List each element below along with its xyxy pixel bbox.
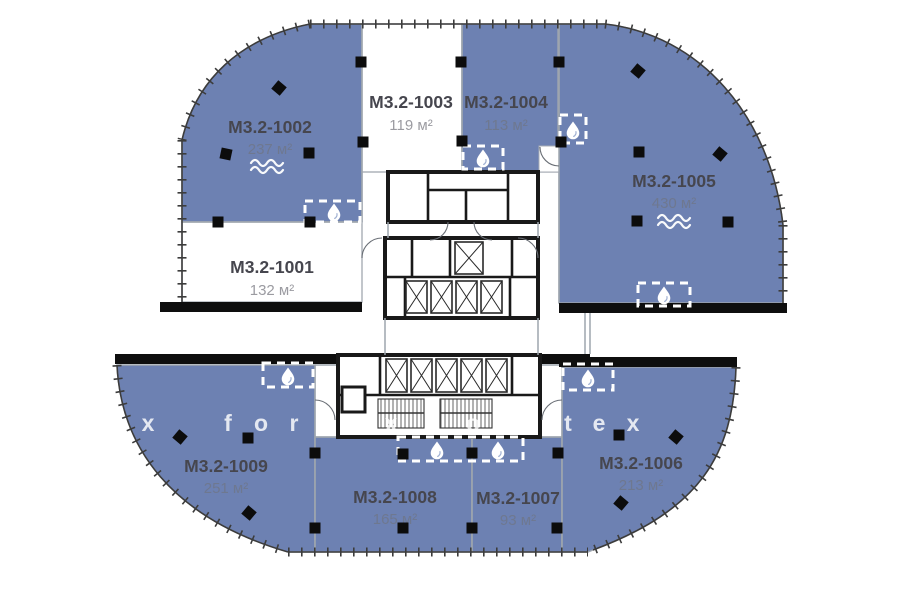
watermark-letter: x xyxy=(142,410,155,436)
watermark-letter: o xyxy=(466,410,480,436)
column-marker xyxy=(219,147,232,160)
unit-label: M3.2-1001 xyxy=(230,257,314,277)
door-notch-1004 xyxy=(539,146,559,172)
column-marker xyxy=(634,147,645,158)
elevator-shaft xyxy=(486,359,507,392)
elevator-shaft xyxy=(436,359,457,392)
watermark-letter: e xyxy=(351,410,364,436)
elevator-shaft xyxy=(455,242,483,274)
column-marker xyxy=(556,137,567,148)
column-marker xyxy=(457,136,468,147)
column-marker xyxy=(467,523,478,534)
watermark-letter: r xyxy=(290,410,299,436)
unit-area-label: 430 м² xyxy=(652,195,697,212)
unit-area-label: 213 м² xyxy=(619,477,664,494)
watermark-letter: r xyxy=(501,410,510,436)
unit-label: M3.2-1002 xyxy=(228,117,312,137)
column-marker xyxy=(467,448,478,459)
watermark-letter: t xyxy=(323,410,331,436)
watermark-letter: t xyxy=(564,410,572,436)
unit-m3-2-1005[interactable] xyxy=(559,24,783,303)
watermark-letter: x xyxy=(627,410,640,436)
column-marker xyxy=(614,430,625,441)
column-marker xyxy=(553,448,564,459)
unit-area-label: 93 м² xyxy=(500,512,536,529)
unit-area-label: 251 м² xyxy=(204,480,249,497)
floor-plan-page: M3.2-1001 132 м² M3.2-1002 237 м² M3.2-1… xyxy=(0,0,900,604)
column-marker xyxy=(554,57,565,68)
unit-area-label: 132 м² xyxy=(250,282,295,299)
column-marker xyxy=(358,137,369,148)
elevator-shaft xyxy=(461,359,482,392)
elevator-shaft xyxy=(386,359,407,392)
unit-label: M3.2-1005 xyxy=(632,171,716,191)
floor-plan-svg: M3.2-1001 132 м² M3.2-1002 237 м² M3.2-1… xyxy=(0,0,900,604)
column-marker xyxy=(310,523,321,534)
wall-bar-1001 xyxy=(160,302,362,312)
watermark-letter: f xyxy=(224,410,232,436)
elevator-shaft xyxy=(456,281,477,313)
column-marker xyxy=(398,523,409,534)
watermark-letter: o xyxy=(254,410,268,436)
column-marker xyxy=(243,433,254,444)
unit-label: M3.2-1007 xyxy=(476,488,560,508)
unit-area-label: 113 м² xyxy=(484,117,527,134)
unit-label: M3.2-1008 xyxy=(353,487,437,507)
column-marker xyxy=(305,217,316,228)
column-marker xyxy=(310,448,321,459)
elevator-shaft xyxy=(431,281,452,313)
wall-bar-1006 xyxy=(559,357,737,367)
column-marker xyxy=(552,523,563,534)
column-marker xyxy=(723,217,734,228)
elevator-shaft xyxy=(411,359,432,392)
elevator-shaft xyxy=(406,281,427,313)
unit-area-label: 165 м² xyxy=(373,511,418,528)
unit-label: M3.2-1003 xyxy=(369,92,453,112)
unit-label: M3.2-1006 xyxy=(599,453,683,473)
unit-area-label: 119 м² xyxy=(389,117,432,134)
column-marker xyxy=(213,217,224,228)
watermark-letter: e xyxy=(593,410,606,436)
watermark-letter: x xyxy=(385,410,398,436)
column-marker xyxy=(632,216,643,227)
column-marker xyxy=(356,57,367,68)
elevator-shaft xyxy=(481,281,502,313)
column-marker xyxy=(304,148,315,159)
unit-area-label: 237 м² xyxy=(248,141,293,158)
unit-label: M3.2-1009 xyxy=(184,456,268,476)
column-marker xyxy=(398,449,409,460)
unit-label: M3.2-1004 xyxy=(464,92,548,112)
column-marker xyxy=(456,57,467,68)
